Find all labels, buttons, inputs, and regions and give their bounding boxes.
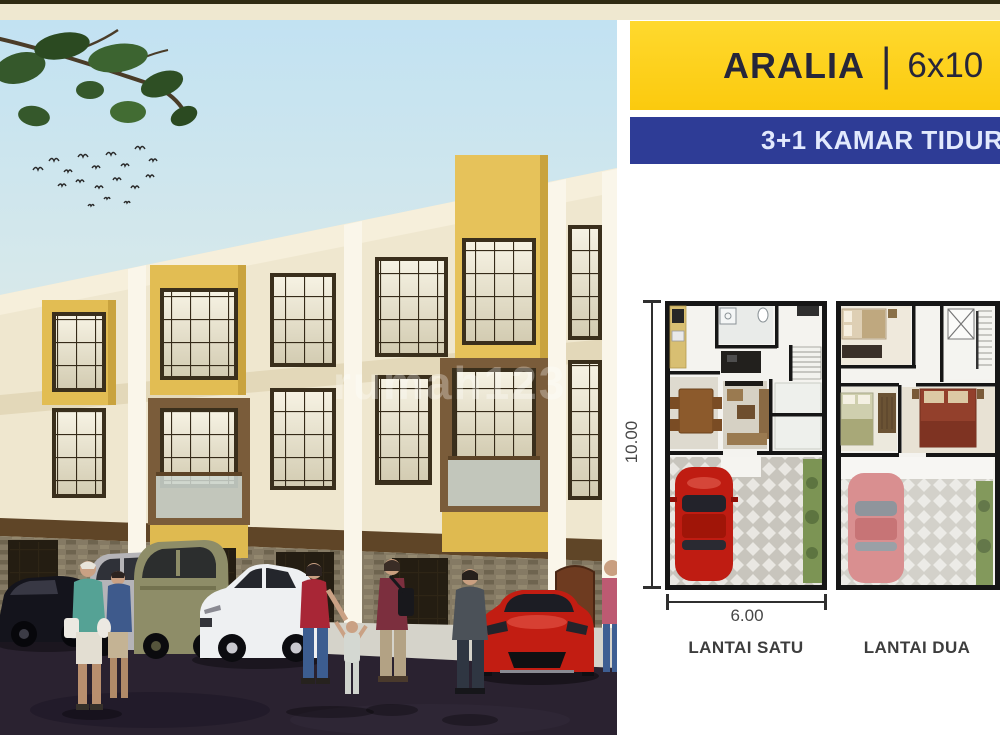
unit-size: 6x10: [907, 46, 983, 86]
living-room-set: [723, 381, 769, 449]
photo-watermark: rumah123: [333, 356, 566, 410]
height-dimension-label: 10.00: [622, 416, 642, 468]
bedroom-count-text: 3+1 KAMAR TIDUR: [761, 125, 1000, 156]
exterior-render-photo: rumah123: [0, 20, 617, 735]
master-bedroom: [902, 387, 995, 453]
top-border-band: [0, 4, 1000, 20]
stairs: [792, 347, 821, 379]
title-separator: |: [881, 40, 891, 92]
balcony-box-left: [148, 398, 250, 525]
bedroom-two: [841, 387, 897, 451]
stairs-void: [944, 306, 992, 379]
shoe-cabinet: [797, 306, 819, 316]
width-dimension-line: [668, 601, 826, 603]
carport-area: [670, 457, 822, 585]
car-top-view: [670, 467, 738, 581]
height-dimension-line: [651, 302, 653, 588]
floor-plan-second-floor: [836, 301, 1000, 590]
floor-two-label: LANTAI DUA: [834, 638, 1000, 658]
dining-set: [670, 377, 722, 449]
bedroom-count-banner: 3+1 KAMAR TIDUR: [630, 117, 1000, 164]
bedroom-one: [841, 306, 911, 366]
project-title-banner: ARALIA | 6x10: [630, 21, 1000, 110]
height-dim-cap-top: [643, 300, 661, 303]
width-dimension-label: 6.00: [668, 606, 826, 626]
car-roof-view-faded: [848, 473, 904, 583]
real-estate-flyer: rumah123 ARALIA | 6x10 3+1 KAMAR TIDUR 1…: [0, 0, 1000, 750]
bathroom: [717, 306, 773, 344]
floor-plan-first-floor: [665, 301, 827, 590]
balcony-roof-area: [841, 457, 993, 585]
project-name: ARALIA: [723, 45, 865, 87]
floor-one-label: LANTAI SATU: [660, 638, 832, 658]
kitchen: [670, 306, 686, 368]
height-dim-cap-bottom: [643, 586, 661, 589]
kitchen-island: [721, 351, 761, 373]
